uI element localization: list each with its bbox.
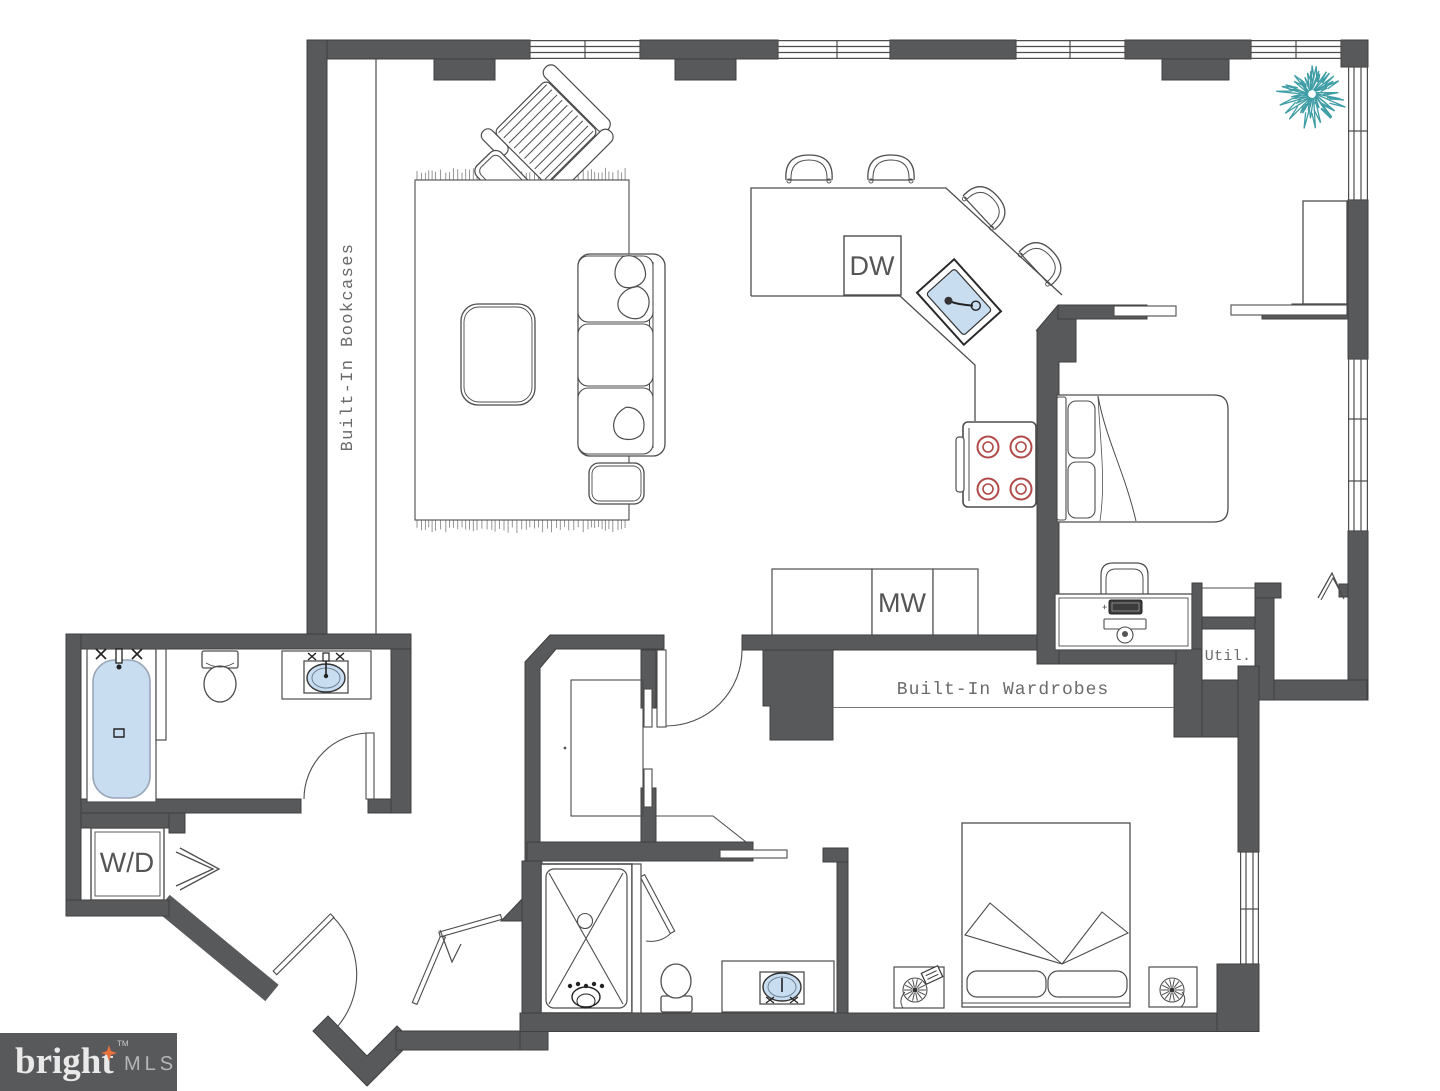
svg-text:TM: TM: [117, 1039, 129, 1048]
svg-text:W/D: W/D: [100, 847, 154, 878]
svg-text:Built-In Bookcases: Built-In Bookcases: [339, 243, 358, 452]
svg-text:+: +: [1102, 602, 1107, 612]
svg-text:DW: DW: [850, 251, 895, 281]
svg-text:MLS: MLS: [124, 1053, 177, 1075]
svg-text:bright: bright: [15, 1041, 114, 1082]
svg-text:MW: MW: [878, 588, 926, 618]
svg-text:Built-In Wardrobes: Built-In Wardrobes: [897, 680, 1109, 700]
svg-text:Util.: Util.: [1205, 648, 1252, 665]
